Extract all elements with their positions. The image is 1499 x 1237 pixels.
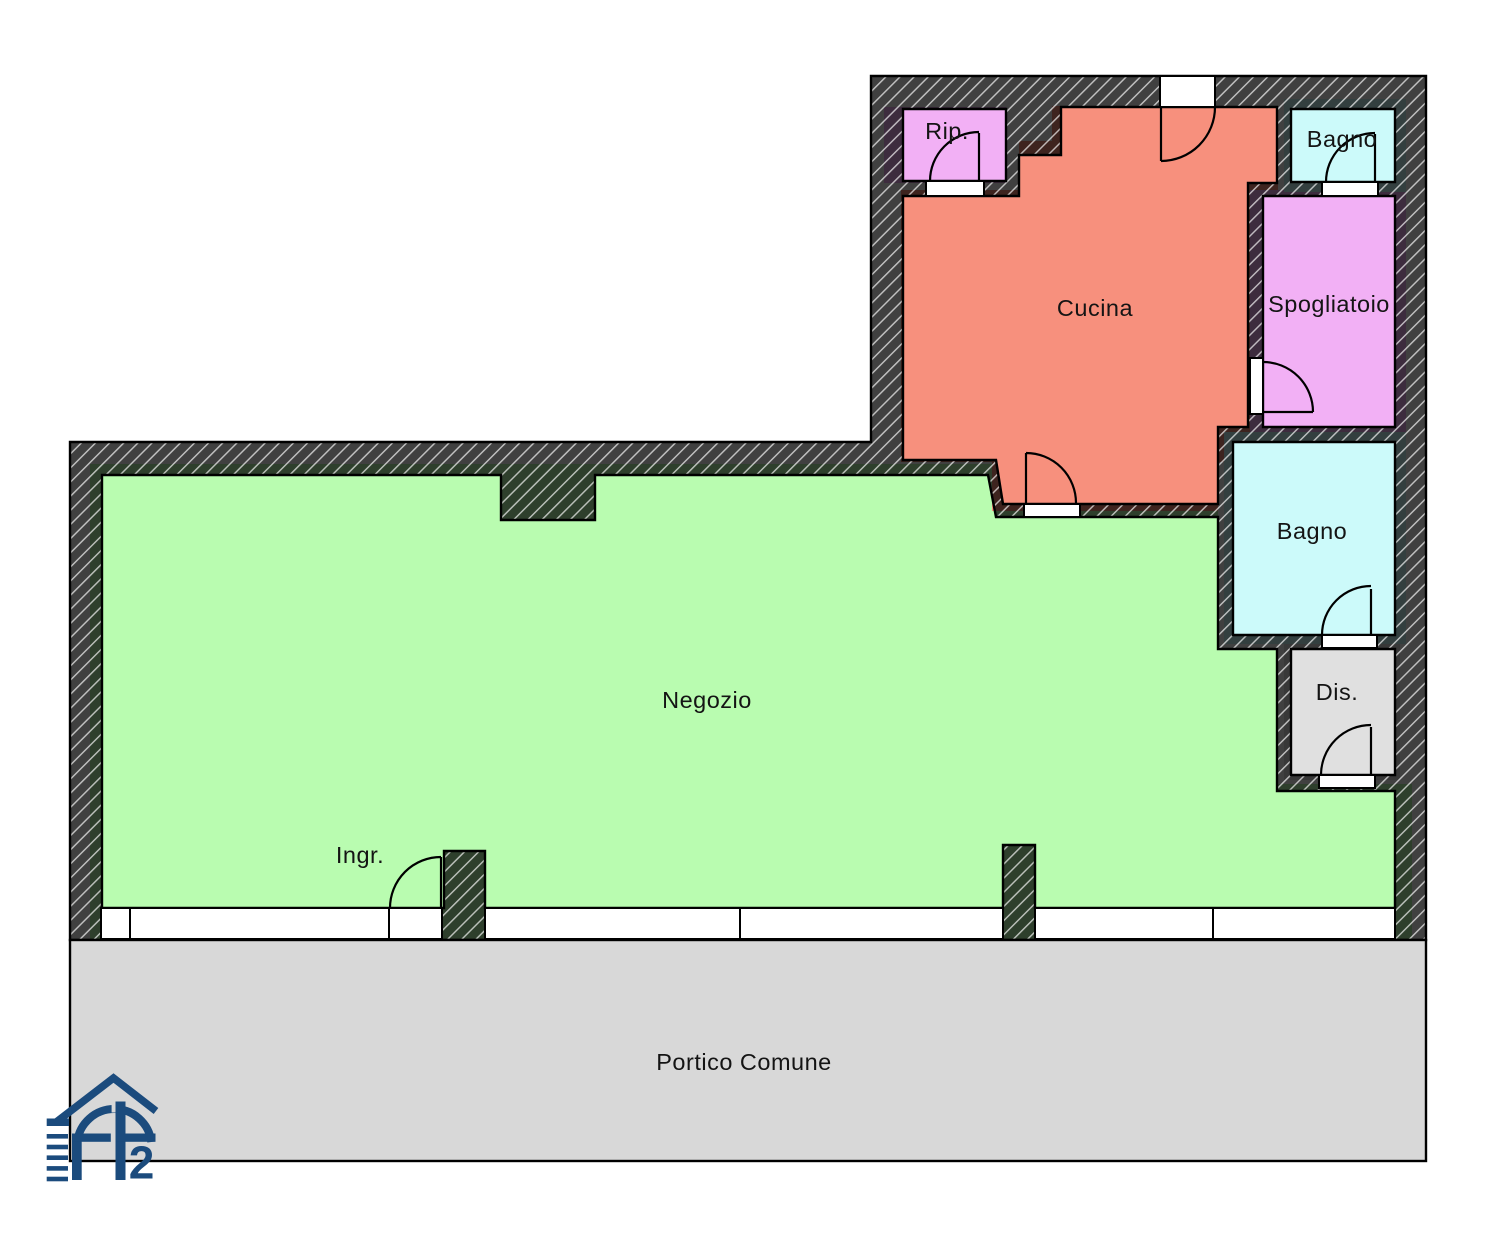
svg-text:Bagno: Bagno	[1277, 518, 1347, 544]
svg-text:2: 2	[129, 1137, 155, 1189]
svg-text:Negozio: Negozio	[662, 687, 752, 713]
svg-text:Ingr.: Ingr.	[336, 842, 384, 868]
svg-text:Dis.: Dis.	[1316, 679, 1358, 705]
svg-text:Portico Comune: Portico Comune	[656, 1049, 832, 1075]
svg-text:Spogliatoio: Spogliatoio	[1268, 291, 1390, 317]
svg-text:Bagno: Bagno	[1307, 126, 1377, 152]
svg-text:Rip.: Rip.	[925, 118, 969, 144]
svg-text:Cucina: Cucina	[1057, 295, 1134, 321]
